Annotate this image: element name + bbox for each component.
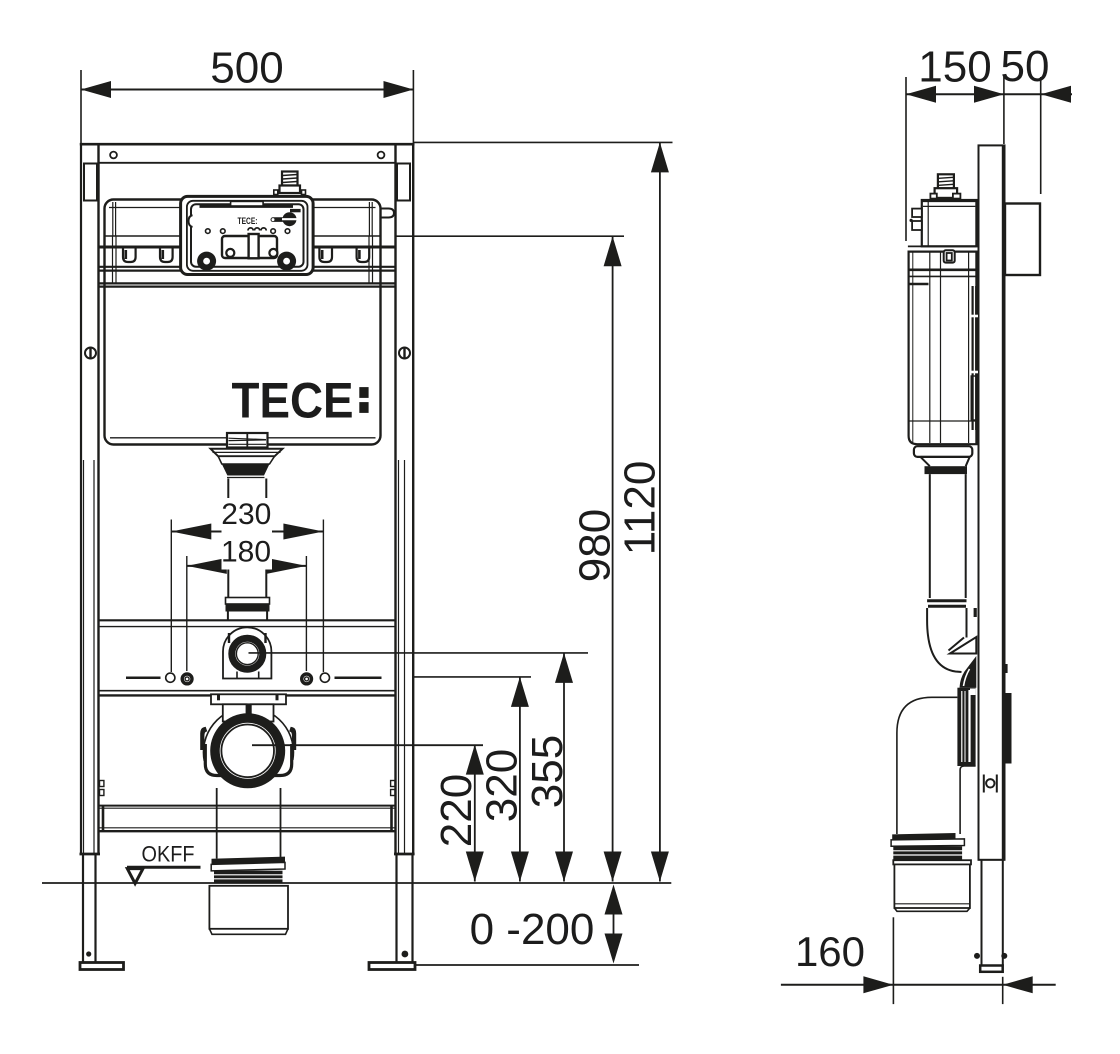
svg-text:150: 150: [918, 43, 991, 92]
svg-text:220: 220: [432, 774, 481, 847]
svg-text:1120: 1120: [616, 461, 665, 556]
svg-text:180: 180: [221, 536, 271, 569]
svg-text:TECE: TECE: [232, 373, 354, 429]
svg-text:0 -200: 0 -200: [470, 905, 595, 954]
svg-text:320: 320: [478, 749, 527, 822]
svg-text:980: 980: [571, 509, 620, 582]
svg-text:TECE:: TECE:: [238, 216, 258, 226]
svg-text:160: 160: [795, 928, 865, 975]
svg-text:230: 230: [221, 498, 271, 531]
svg-text:50: 50: [1001, 42, 1050, 91]
svg-text:355: 355: [523, 735, 572, 808]
svg-text:500: 500: [210, 44, 283, 93]
svg-text:OKFF: OKFF: [142, 842, 195, 867]
